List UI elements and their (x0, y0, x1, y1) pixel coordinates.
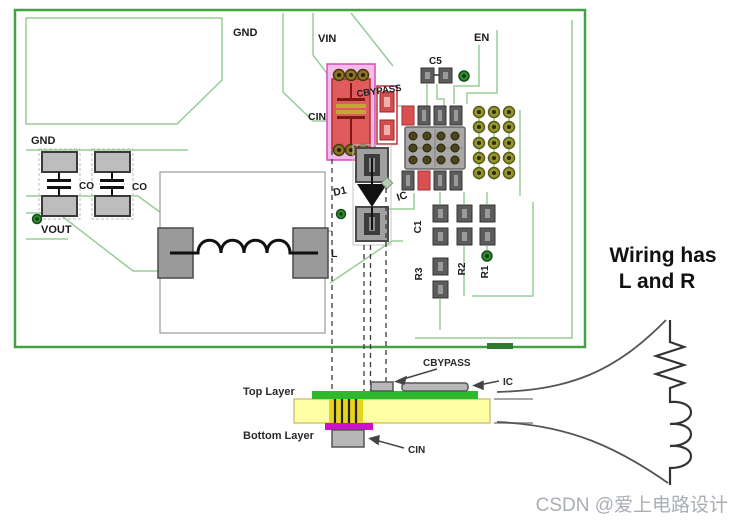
co2-label: CO (132, 182, 147, 193)
substrate (294, 399, 490, 423)
via-barrel-stack (329, 399, 363, 423)
vout-label: VOUT (41, 224, 72, 236)
board-cross-section (294, 369, 533, 448)
top-layer-label: Top Layer (243, 386, 295, 398)
ic-cross-label: IC (503, 377, 513, 388)
cbypass-cross-label: CBYPASS (423, 358, 471, 369)
c1-label: C1 (413, 220, 424, 233)
ic-component-cross (402, 383, 468, 391)
diagram-svg: GND VIN EN C5 CBYPASS CIN GND CO CO VOUT… (0, 0, 735, 522)
input-capacitor-cin (327, 64, 375, 160)
pcb-layout-figure: GND VIN EN C5 CBYPASS CIN GND CO CO VOUT… (0, 0, 735, 522)
funnel-bottom-curve (497, 422, 668, 483)
top-copper-layer (312, 391, 478, 399)
ground-via-grid (474, 107, 515, 179)
resistor-inductor-symbol (656, 320, 691, 485)
wiring-annotation: Wiring has L and R (609, 244, 716, 293)
annotation-line1: Wiring has (609, 244, 716, 267)
cin-component-cross (332, 430, 364, 447)
gnd-left-label: GND (31, 135, 56, 147)
r2-label: R2 (457, 262, 468, 275)
r3-label: R3 (414, 267, 425, 280)
vin-label: VIN (318, 33, 336, 45)
r1-label: R1 (480, 265, 491, 278)
board-continuation-lines (494, 399, 533, 423)
bottom-layer-label: Bottom Layer (243, 430, 315, 442)
c5-label: C5 (429, 56, 442, 67)
co1-label: CO (79, 181, 94, 192)
vout-via (33, 215, 42, 224)
inductor-l (158, 172, 328, 333)
annotation-line2: L and R (619, 270, 696, 293)
gnd-top-label: GND (233, 27, 258, 39)
bottom-pad-magenta (325, 423, 373, 430)
cbypass-component-cross (371, 382, 393, 391)
board-edge-pad (487, 343, 513, 349)
watermark-text: CSDN @爱上电路设计 (536, 494, 728, 516)
cin-cross-label: CIN (408, 445, 425, 456)
cin-label: CIN (308, 111, 326, 123)
en-label: EN (474, 32, 489, 44)
ic-chip (402, 106, 465, 190)
l-label: L (331, 248, 338, 260)
